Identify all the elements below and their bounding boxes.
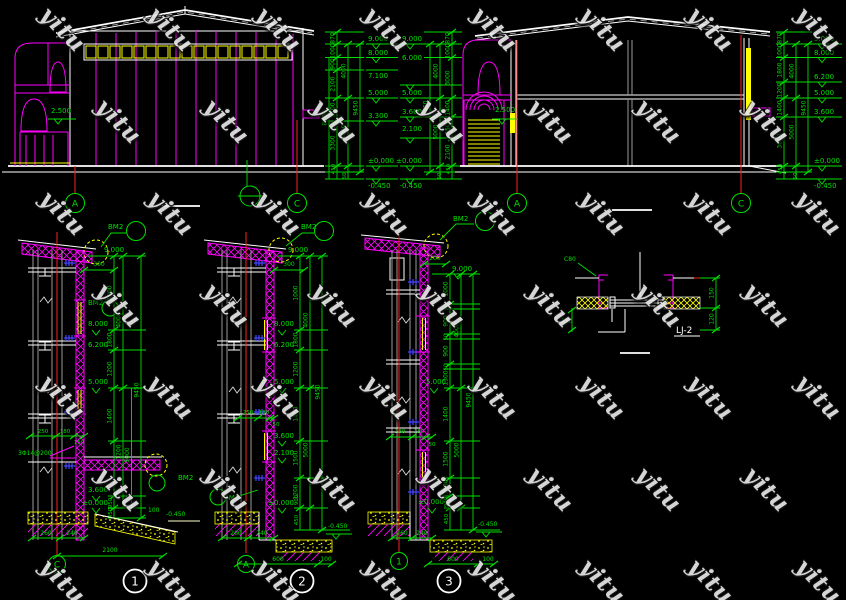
level-label: 8.000 [274,320,294,328]
level-label: 9.000 [104,246,124,254]
dim-label: 2100 [102,547,117,554]
dim-label: 1000 [330,43,337,58]
dim-chain-1: 870 1000 900 2100 1700 3300 8500 4000 50… [322,29,399,190]
levels-chain-2: 9.000 6.000 5.000 3.600 2.100 ±0.000 -0.… [396,35,424,190]
dim-label: 5000 [454,442,461,457]
level-label: 8.000 [814,49,834,57]
dim-label: 5000 [433,124,440,139]
dim-label: 50 [273,422,280,428]
stair-treads [468,120,500,164]
rebar-label: 3Φ14@200 [18,450,52,457]
levels-detail-1: 9.000 8.000 6.200 5.000 3.600 ±0.000 [82,246,124,513]
dim-label: 1400 [443,406,450,421]
detail-1: BM2 BM2 BM2 300 1000 1800 1200 4000 1400… [18,222,200,593]
level-label: -0.450 [166,511,186,518]
dim-label: 1000 [443,281,450,296]
bm2-label: BM2 [178,474,193,482]
dim-label: 900 [444,496,450,507]
level-label: 6.200 [88,341,108,349]
level-label: 2.500 [51,107,71,115]
dim-label: 450 [778,163,784,174]
dim-label: 450 [294,514,300,525]
dim-label: 1700 [330,102,337,117]
dim-label: 4000 [341,63,348,78]
dim-label: 100 [148,507,160,514]
level-label: 6.000 [402,54,422,62]
dim-label: 870 [777,32,784,44]
dim-label: 1400 [107,408,114,423]
dim-label: 1200 [116,444,123,459]
level-label: 8.000 [368,49,388,57]
dim-label: 200 [429,255,441,262]
dim-label: 240 [66,530,78,537]
dim-label: 240 [256,530,268,537]
dim-label: 4000 [433,63,440,78]
level-label: -0.450 [478,521,498,528]
level-label: 8.000 [88,320,108,328]
axis-bubble-label: A [72,200,79,210]
dim-label: 1200 [293,361,300,376]
dim-label: 4000 [789,63,796,78]
level-label: ±0.000 [418,498,444,506]
elevation-left: 2.500 A C [2,6,330,213]
level-label: 7.100 [368,72,388,80]
level-label: 5.000 [814,89,834,97]
level-label: 3.600 [814,108,834,116]
dim-label: 3300 [330,135,337,150]
detail-number: 1 [131,575,139,589]
dim-label: 900 [443,315,450,327]
level-label: 3.600 [88,486,108,494]
dim-label: 250 [38,429,49,435]
axis-bubble-label: A [514,200,521,210]
dim-label: 4000 [303,312,310,327]
level-label: 9.000 [288,246,308,254]
dim-label: 50 [429,442,436,448]
cad-sheet: 2.500 A C 870 1000 900 2100 1700 3300 85… [0,0,846,600]
dim-label: 1300 [443,479,450,494]
level-label: 3.600 [274,432,294,440]
dim-label: 870 [445,32,452,44]
dim-label: 5000 [124,447,131,462]
level-label: 5.000 [402,89,422,97]
level-label: 2.100 [274,449,294,457]
detail-number: 2 [298,575,306,589]
level-label: 9.000 [368,35,388,43]
level-label: 6.200 [274,341,294,349]
detail-lj2: C80 150 150 120 LJ-2 [561,252,720,353]
level-label: 2.500 [495,106,515,114]
detail-3: BM2 200 9.000 1000 50 900 50 900 50 1300… [361,212,502,593]
dim-label: 1400 [445,100,452,115]
level-label: -0.450 [399,182,422,190]
annex-elevation [15,43,319,166]
dim-label: 1500 [445,119,452,134]
dim-label: 1800 [777,62,784,77]
dim-label: 450 [446,163,452,174]
detail-number: 3 [445,575,453,589]
dim-label: 50 [444,363,450,370]
dim-label: 240 [416,530,428,537]
level-label: 9.000 [452,265,472,273]
note-label: C80 [564,256,576,263]
axis-bubble-label: A [243,561,250,571]
level-label: -0.450 [368,182,391,190]
dim-label: 900 [294,494,300,505]
dim-label: 9450 [134,382,141,397]
dim-label: 250 [243,410,254,416]
level-label: 5.000 [426,378,446,386]
bm2-label: BM2 [301,223,316,231]
dim-label: 180 [414,429,425,435]
dim-label: 50 [793,172,799,179]
level-label: 9.000 [814,35,834,43]
dim-label: 260 [396,530,408,537]
level-label: 5.000 [274,378,294,386]
dim-label: 870 [330,32,337,44]
dim-label: 150 [709,287,716,299]
dim-label: 9450 [801,100,808,115]
level-label: -0.450 [328,523,348,530]
dim-label: 180 [60,429,71,435]
dim-label: 150 [74,440,85,446]
dim-label: 1400 [293,406,300,421]
dim-label: 1400 [777,100,784,115]
dim-label: 2100 [330,76,337,91]
dim-label: 450 [331,163,337,174]
axis-bubble-label: C [294,200,300,210]
dim-label: 300 [93,261,105,268]
dim-label: 50 [444,333,450,340]
dim-label: 1000 [445,43,452,58]
dim-label: 5000 [303,442,310,457]
level-label: ±0.000 [268,499,294,507]
dim-chain-3: 870 1000 1800 1200 1400 3600 4000 5000 9… [776,29,842,190]
dim-label: 50 [342,172,348,179]
dim-label: 260 [230,530,242,537]
dim-label: 900 [330,58,337,70]
dim-label: 1000 [777,43,784,58]
bm2-label: BM2 [108,223,123,231]
dim-label: 100 [320,556,332,563]
dim-label: 4000 [116,312,123,327]
dim-label: 450 [444,513,450,524]
dim-label: 260 [40,530,52,537]
axis-bubble-label: C [738,200,744,210]
bm2-label: BM2 [453,215,468,223]
dim-label: 150 [561,318,573,325]
dim-label: 600 [447,556,459,563]
axis-bubble-label: 1 [396,558,402,568]
dim-label: 230 [395,429,406,435]
level-label: 9.000 [402,35,422,43]
section-right: 2.500 A C [455,17,788,213]
levels-chain-1: 9.000 8.000 7.100 5.000 3.300 ±0.000 -0.… [366,35,398,190]
level-label: 5.000 [368,89,388,97]
dim-label: 1200 [777,82,784,97]
dim-label: 9450 [353,100,360,115]
dim-label: 2100 [445,144,452,159]
dim-label: 50 [437,172,443,179]
dim-label: 3600 [777,133,784,148]
axis-bubble-label: C [54,561,60,571]
dim-label: 8500 [322,110,329,125]
dim-label: 3000 [445,70,452,85]
dim-label: 120 [709,313,716,325]
dim-label: 600 [272,556,284,563]
level-label: 3.300 [368,112,388,120]
dim-label: 900 [443,345,450,357]
level-label: 2.100 [402,125,422,133]
dim-label: 5000 [789,124,796,139]
detail-title: LJ-2 [676,326,692,336]
level-label: 6.200 [814,73,834,81]
dim-label: 1500 [443,451,450,466]
level-label: 3.600 [402,108,422,116]
dim-label: 1000 [107,285,114,300]
dim-label: 50 [444,303,450,310]
dim-label: 9450 [466,392,473,407]
drawing-canvas: 2.500 A C 870 1000 900 2100 1700 3300 85… [0,0,846,600]
dim-chain-2: 870 1000 3000 1400 1500 2100 4000 5000 9… [396,29,462,190]
dim-label: 1200 [107,361,114,376]
level-label: ±0.000 [368,157,394,165]
detail-2: BM2 BM2 300 1000 1800 1200 4000 1400 150… [204,222,352,593]
dim-label: 100 [482,556,494,563]
dim-label: 9450 [315,384,322,399]
dim-label: 300 [283,261,295,268]
level-label: ±0.000 [396,157,422,165]
level-label: 5.000 [88,378,108,386]
dim-label: 950 [108,497,114,508]
dim-label: 4000 [454,322,461,337]
dim-label: 5000 [341,124,348,139]
level-label: ±0.000 [814,157,840,165]
dim-label: 1000 [293,285,300,300]
dim-label: 180 [259,410,270,416]
bm2-label: BM2 [88,299,103,307]
level-label: -0.450 [814,182,837,190]
annex-section [463,40,511,166]
dim-label: 9450 [423,100,430,115]
levels-chain-3: 9.000 8.000 6.200 5.000 3.600 ±0.000 -0.… [812,35,842,190]
